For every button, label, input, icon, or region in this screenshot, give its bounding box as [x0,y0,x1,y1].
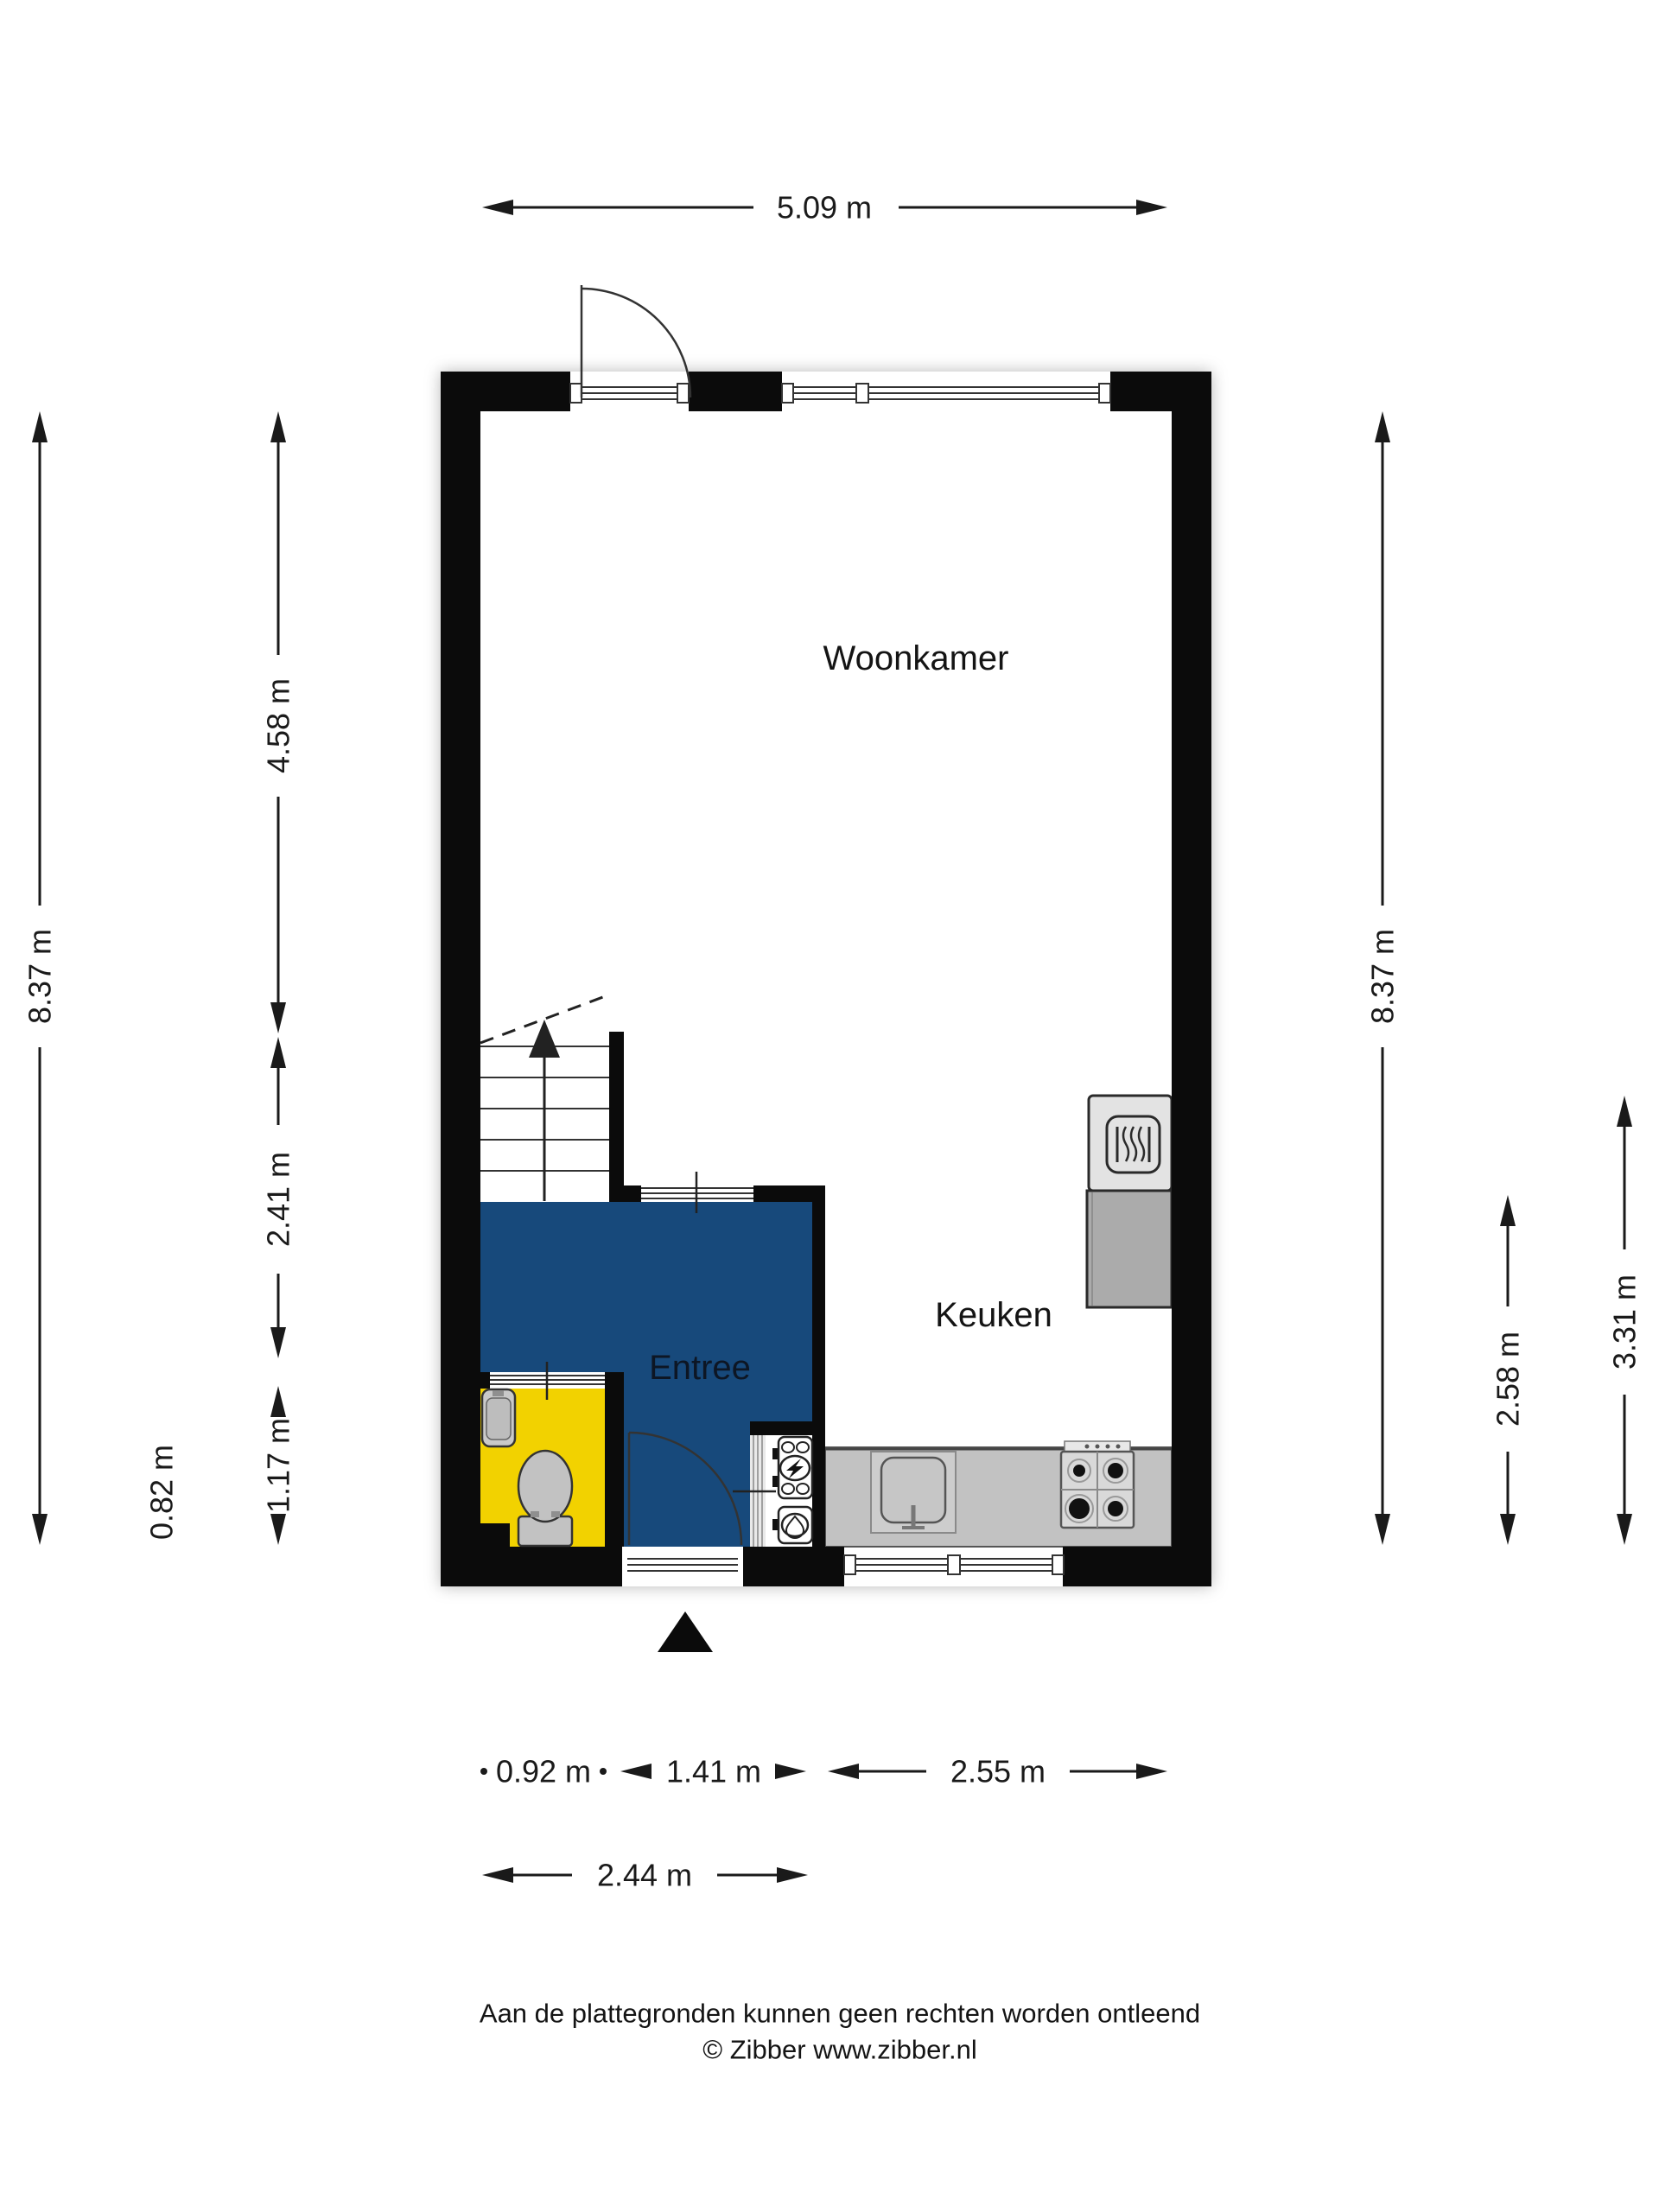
dim-label-bottom-entry-total: 2.44 m [597,1858,692,1893]
dim-right-kitchen: 3.31 m [1607,1096,1643,1545]
dim-label-top-width: 5.09 m [777,190,872,226]
dim-label-left-lower: 1.17 m [261,1418,296,1513]
dim-label-left-upper: 4.58 m [261,678,296,773]
electric-meter-icon [772,1437,812,1498]
dim-label-left-stairs: 2.41 m [261,1152,296,1247]
floorplan-page: Woonkamer Keuken Entree 5.09 m 8.37 m [0,0,1659,2212]
top-window [782,375,1110,408]
room-label-entry: Entree [649,1349,751,1387]
dim-label-bottom-kitchen: 2.55 m [950,1754,1046,1789]
appliance-tower [1087,1096,1172,1307]
dim-left-total: 8.37 m [22,411,58,1545]
floorplan-drawing: Woonkamer Keuken Entree [441,285,1211,1652]
room-label-kitchen: Keuken [935,1296,1052,1334]
dim-label-right-total: 8.37 m [1365,929,1401,1024]
dim-top-width: 5.09 m [482,190,1167,226]
footer: Aan de plattegronden kunnen geen rechten… [480,1999,1200,2065]
toilet-sink-icon [482,1389,515,1446]
kitchen-window [844,1550,1064,1583]
stove-icon [1061,1441,1134,1528]
dim-bottom-toilet: 0.92 m [480,1754,607,1789]
dim-bottom-door: 1.41 m [620,1754,806,1789]
dim-bottom-entry-total: 2.44 m [482,1858,808,1893]
toilet-icon [518,1451,572,1546]
dim-bottom-kitchen: 2.55 m [828,1754,1167,1789]
dim-label-left-total: 8.37 m [22,929,58,1024]
dim-right-counter: 2.58 m [1491,1195,1526,1545]
room-label-living: Woonkamer [823,639,1009,677]
top-door-opening [570,375,689,408]
dim-label-bottom-toilet: 0.92 m [496,1754,591,1789]
footer-disclaimer: Aan de plattegronden kunnen geen rechten… [480,1999,1200,2029]
dim-left-lower: 1.17 m [261,1386,296,1545]
dim-left-upper: 4.58 m [261,411,296,1033]
dim-label-left-offset: 0.82 m [144,1445,180,1540]
dim-right-total: 8.37 m [1365,411,1401,1545]
dim-label-bottom-door: 1.41 m [666,1754,761,1789]
kitchen-sink-icon [871,1452,956,1533]
footer-credit: © Zibber www.zibber.nl [702,2035,976,2065]
front-door-opening [622,1550,743,1583]
water-meter-icon [772,1507,812,1543]
entrance-arrow-icon [658,1611,713,1652]
dim-label-right-counter: 2.58 m [1491,1332,1526,1427]
dim-label-right-kitchen: 3.31 m [1607,1274,1643,1370]
dim-left-stairs: 2.41 m [261,1037,296,1358]
